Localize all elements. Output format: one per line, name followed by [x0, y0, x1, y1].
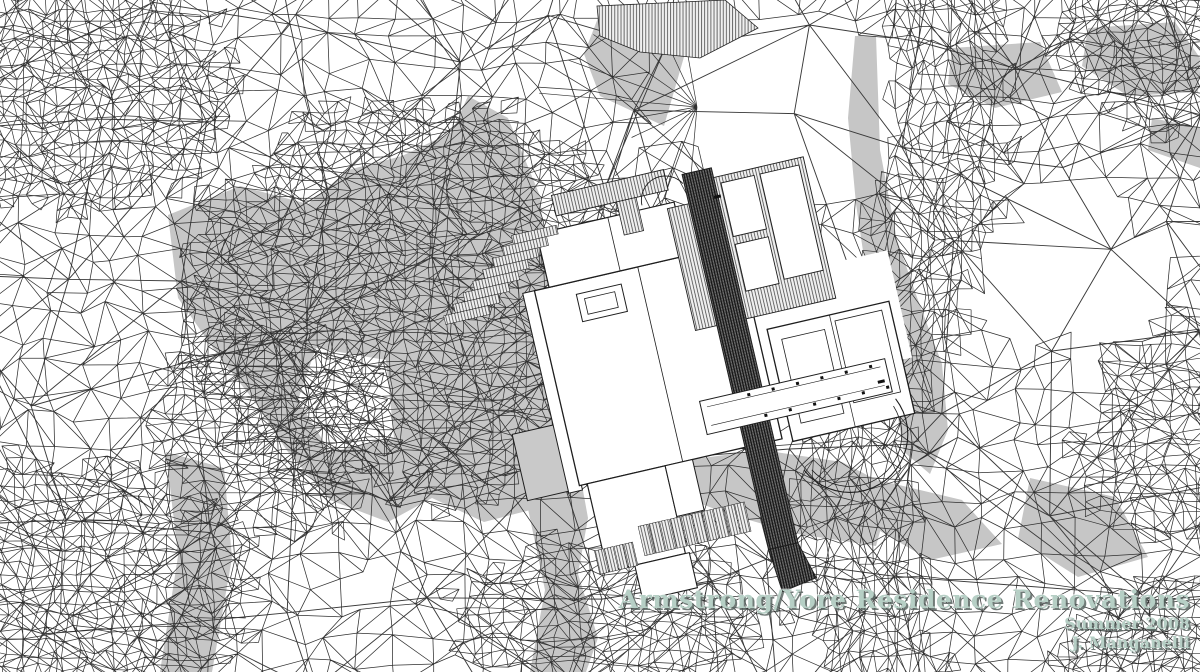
aerial-model-rendering — [0, 0, 1200, 672]
model-viewport: Armstrong/Yore Residence Renovations Sum… — [0, 0, 1200, 672]
